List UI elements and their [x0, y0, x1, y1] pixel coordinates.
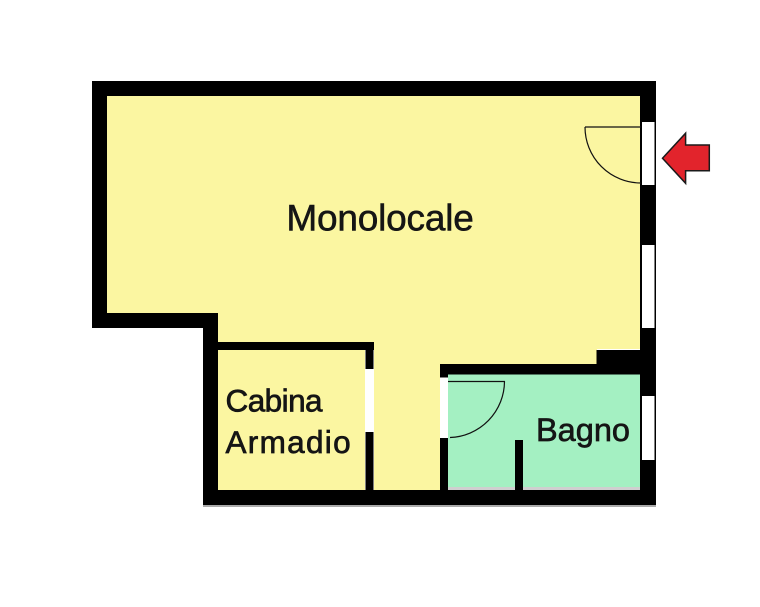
svg-text:Monolocale: Monolocale [286, 198, 473, 239]
svg-text:Bagno: Bagno [536, 412, 630, 448]
svg-text:Armadio: Armadio [226, 424, 352, 460]
svg-text:Cabina: Cabina [226, 383, 324, 419]
